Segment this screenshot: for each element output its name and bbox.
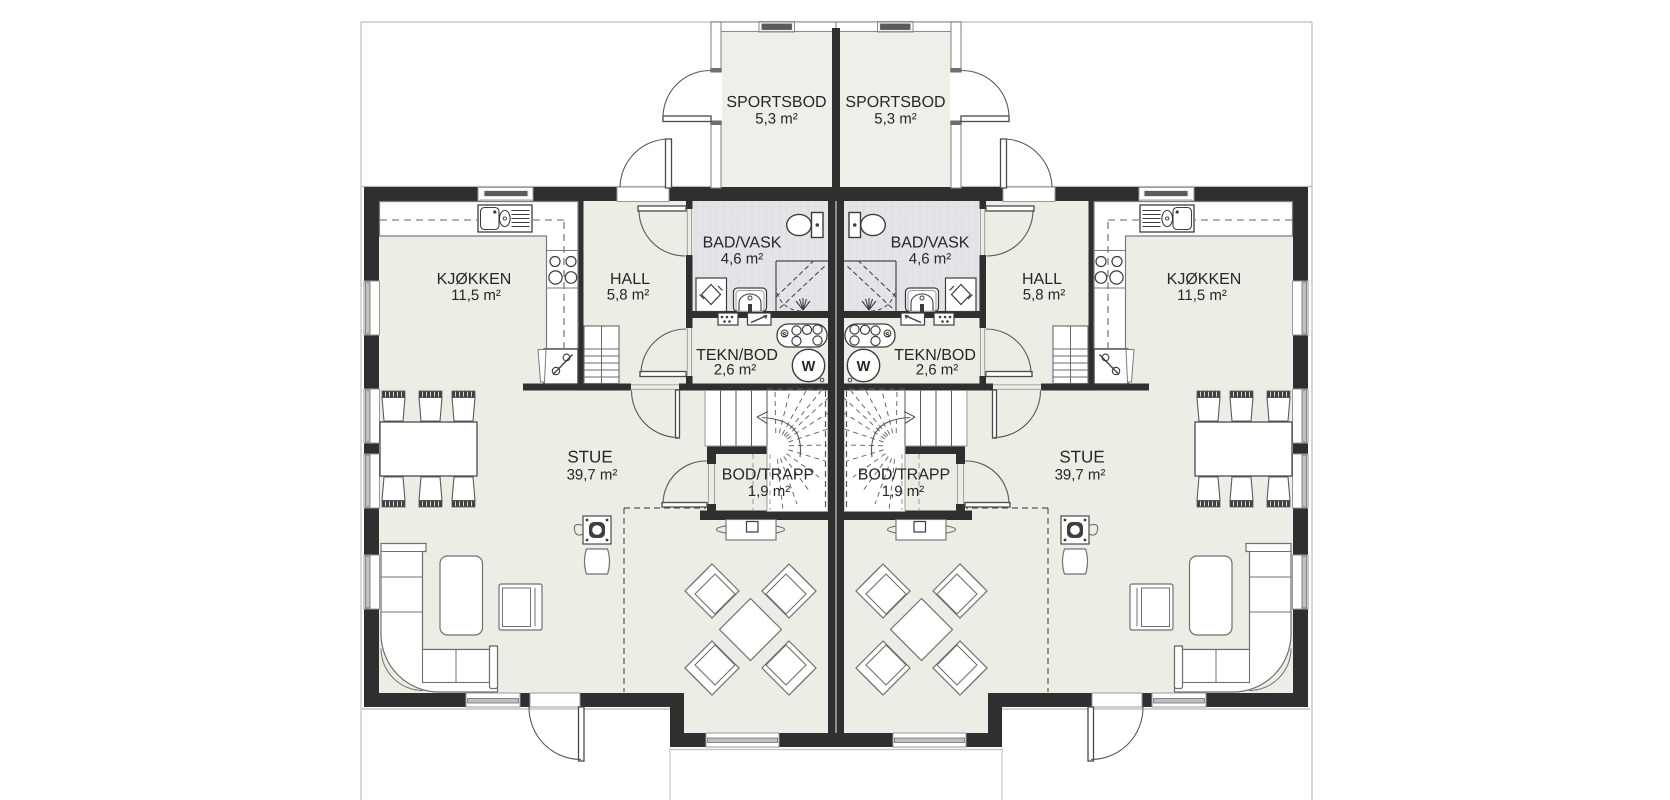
svg-text:STUE: STUE — [567, 448, 612, 467]
svg-text:5,8 m²: 5,8 m² — [607, 287, 650, 304]
svg-text:5,3 m²: 5,3 m² — [755, 111, 798, 128]
svg-text:5,3 m²: 5,3 m² — [874, 111, 917, 128]
svg-text:39,7 m²: 39,7 m² — [567, 467, 618, 484]
svg-text:2,6 m²: 2,6 m² — [916, 362, 959, 379]
svg-text:SPORTSBOD: SPORTSBOD — [726, 94, 826, 111]
svg-text:BAD/VASK: BAD/VASK — [703, 235, 782, 252]
svg-text:BAD/VASK: BAD/VASK — [891, 235, 970, 252]
svg-text:HALL: HALL — [610, 271, 650, 288]
svg-text:KJØKKEN: KJØKKEN — [1167, 271, 1242, 288]
svg-text:11,5 m²: 11,5 m² — [451, 287, 501, 304]
svg-text:BOD/TRAPP: BOD/TRAPP — [722, 467, 814, 484]
svg-text:1,9 m²: 1,9 m² — [882, 483, 925, 500]
svg-text:11,5 m²: 11,5 m² — [1177, 287, 1227, 304]
svg-text:s: s — [885, 329, 890, 339]
svg-text:39,7 m²: 39,7 m² — [1055, 467, 1106, 484]
svg-text:STUE: STUE — [1059, 448, 1104, 467]
svg-text:1,9 m²: 1,9 m² — [748, 483, 791, 500]
svg-text:s: s — [782, 329, 787, 339]
svg-text:W: W — [802, 359, 816, 375]
svg-text:2,6 m²: 2,6 m² — [714, 362, 757, 379]
svg-text:5,8 m²: 5,8 m² — [1023, 287, 1066, 304]
svg-text:W: W — [857, 359, 871, 375]
svg-text:SPORTSBOD: SPORTSBOD — [845, 94, 945, 111]
svg-text:HALL: HALL — [1022, 271, 1062, 288]
svg-text:KJØKKEN: KJØKKEN — [437, 271, 512, 288]
svg-text:4,6 m²: 4,6 m² — [721, 251, 764, 268]
svg-text:4,6 m²: 4,6 m² — [909, 251, 952, 268]
svg-text:BOD/TRAPP: BOD/TRAPP — [858, 467, 950, 484]
